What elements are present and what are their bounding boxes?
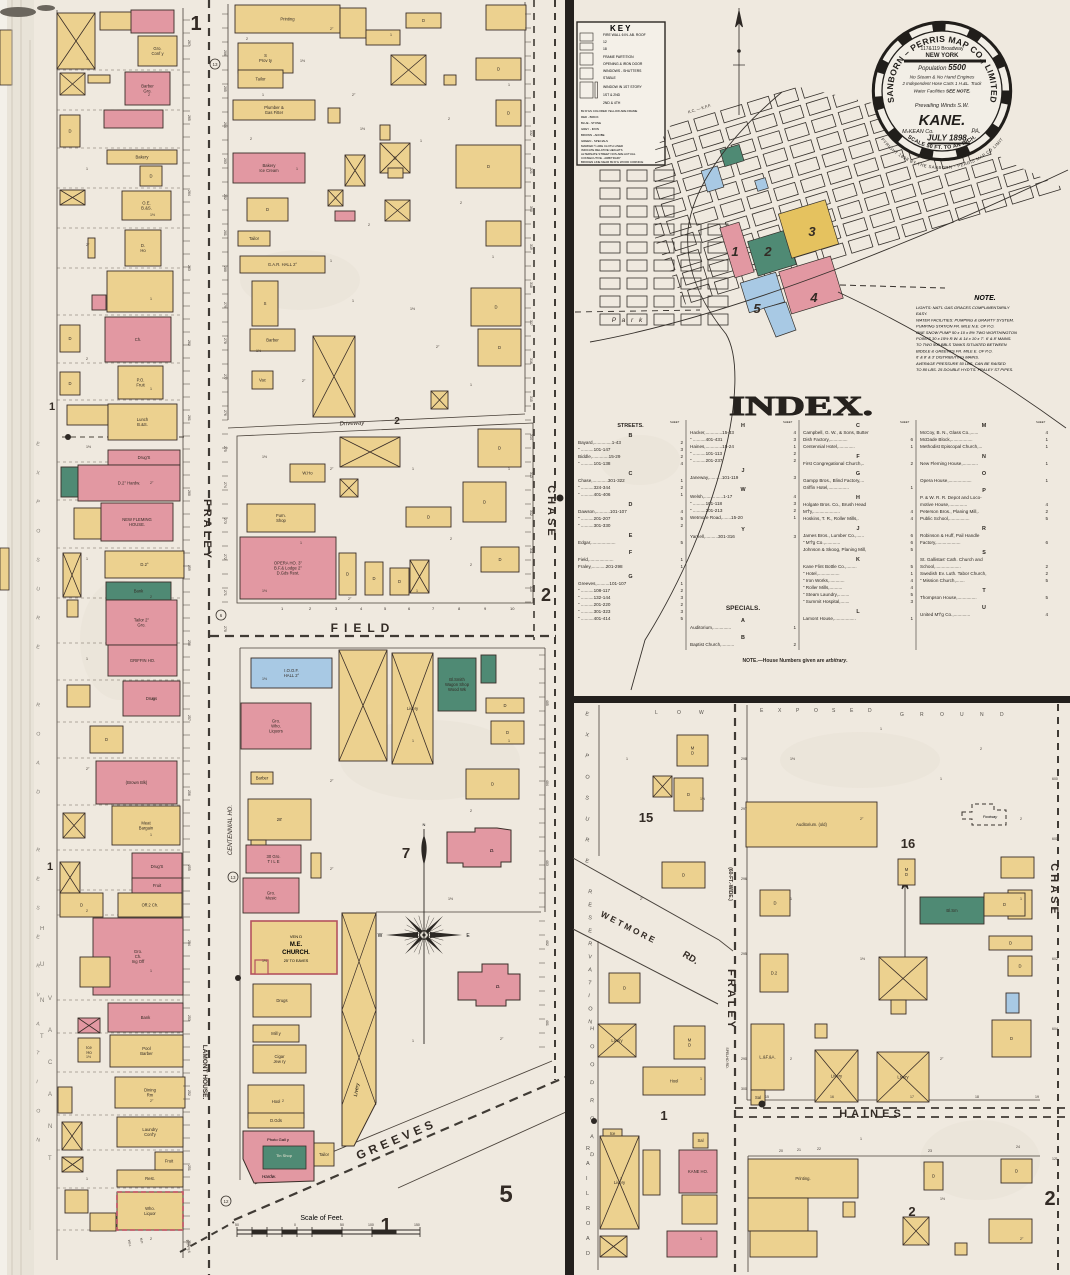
svg-text:401: 401 — [545, 1020, 549, 1026]
svg-text:1½: 1½ — [700, 797, 705, 801]
svg-text:202: 202 — [223, 194, 227, 200]
svg-text:2: 2 — [450, 537, 452, 541]
svg-text:270: 270 — [223, 626, 227, 632]
svg-text:255: 255 — [187, 865, 191, 871]
svg-text:Robinson & Huff, Pail Handle: Robinson & Huff, Pail Handle — [920, 533, 980, 538]
svg-text:D: D — [105, 737, 108, 742]
svg-text:1: 1 — [790, 897, 792, 901]
svg-text:2: 2 — [148, 93, 150, 97]
svg-text:257: 257 — [187, 715, 191, 721]
svg-text:1: 1 — [296, 167, 298, 171]
svg-text:300: 300 — [741, 1087, 747, 1091]
svg-text:1: 1 — [86, 167, 88, 171]
svg-text:17: 17 — [910, 1095, 914, 1099]
svg-text:1: 1 — [940, 777, 942, 781]
svg-text:22: 22 — [817, 1147, 821, 1151]
svg-text:5: 5 — [753, 301, 761, 316]
svg-text:23: 23 — [928, 1149, 932, 1153]
svg-text:BLUE - STONE: BLUE - STONE — [581, 121, 601, 125]
svg-text:2°: 2° — [940, 1057, 944, 1061]
svg-text:Fruit: Fruit — [136, 383, 145, 388]
svg-text:Wetmore Road,.......15-20: Wetmore Road,.......15-20 — [690, 515, 743, 520]
svg-text:WINDOW IN 1ST STORY: WINDOW IN 1ST STORY — [603, 85, 643, 89]
svg-text:1: 1 — [1045, 461, 1048, 466]
svg-text:206: 206 — [223, 50, 227, 56]
svg-text:RED - BRICK: RED - BRICK — [581, 115, 599, 119]
svg-text:Hacker,.............15-33: Hacker,.............15-33 — [690, 430, 734, 435]
svg-text:WINDOWS - SHUTTERS: WINDOWS - SHUTTERS — [603, 69, 642, 73]
svg-text:2: 2 — [246, 37, 248, 41]
svg-text:3: 3 — [793, 437, 796, 442]
svg-text:B.&S.: B.&S. — [137, 422, 148, 427]
svg-text:motive House,..............: motive House,.............. — [920, 502, 967, 507]
svg-text:403: 403 — [545, 860, 549, 866]
svg-text:D.: D. — [490, 848, 495, 853]
svg-text:6' & 8' & 3' DISTRIBUTING MA: 6' & 8' & 3' DISTRIBUTING MAINS. — [916, 355, 979, 360]
svg-text:1: 1 — [300, 541, 302, 545]
svg-text:3: 3 — [910, 599, 913, 604]
svg-text:1: 1 — [150, 833, 152, 837]
svg-text:D: D — [372, 576, 375, 581]
svg-text:U: U — [982, 605, 986, 611]
svg-text:28': 28' — [277, 817, 283, 822]
svg-text:1: 1 — [412, 467, 414, 471]
svg-text:Livery: Livery — [407, 706, 419, 711]
svg-text:C: C — [48, 1060, 53, 1066]
svg-text:D: D — [422, 18, 425, 23]
svg-text:604: 604 — [1052, 1027, 1058, 1031]
svg-text:2: 2 — [460, 201, 462, 205]
svg-text:280: 280 — [223, 266, 227, 272]
svg-text:5: 5 — [680, 616, 683, 621]
svg-text:2°: 2° — [302, 379, 306, 383]
svg-text:2: 2 — [1045, 509, 1048, 514]
svg-text:2: 2 — [86, 909, 88, 913]
svg-text:N: N — [423, 822, 426, 827]
svg-text:C: C — [856, 423, 860, 429]
svg-text:4: 4 — [910, 585, 913, 590]
svg-text:N: N — [982, 454, 986, 460]
svg-text:D: D — [1000, 712, 1004, 718]
svg-text:4: 4 — [793, 494, 796, 499]
svg-text:Livery: Livery — [831, 1073, 843, 1078]
svg-text:Sal: Sal — [755, 1095, 761, 1100]
svg-text:2°: 2° — [330, 779, 334, 783]
svg-text:271: 271 — [223, 590, 227, 596]
svg-text:G: G — [900, 712, 904, 718]
svg-text:2: 2 — [86, 357, 88, 361]
svg-text:1: 1 — [910, 616, 913, 621]
svg-text:Lamont House,.................: Lamont House,................. — [803, 616, 856, 621]
svg-text:4: 4 — [1045, 430, 1048, 435]
svg-text:278: 278 — [223, 338, 227, 344]
svg-text:1: 1 — [680, 557, 683, 562]
svg-text:19: 19 — [1035, 1095, 1039, 1099]
svg-text:P: P — [982, 488, 986, 494]
svg-text:50: 50 — [340, 1223, 344, 1227]
svg-text:Photo Gall y: Photo Gall y — [267, 1137, 289, 1142]
svg-text:Livery: Livery — [897, 1074, 909, 1079]
svg-text:3: 3 — [680, 447, 683, 452]
svg-text:4: 4 — [910, 578, 913, 583]
svg-text:D: D — [491, 781, 494, 786]
svg-text:Rest.: Rest. — [145, 1176, 155, 1181]
svg-text:Off.2 Ch.: Off.2 Ch. — [142, 902, 159, 907]
svg-text:D: D — [773, 900, 776, 905]
svg-text:2: 2 — [150, 1237, 152, 1241]
svg-text:D: D — [498, 345, 501, 350]
svg-text:D: D — [346, 571, 349, 576]
svg-text:6: 6 — [1045, 540, 1048, 545]
svg-text:1½: 1½ — [360, 127, 365, 131]
svg-text:H: H — [856, 495, 860, 501]
svg-text:Tin Shop: Tin Shop — [276, 1153, 293, 1158]
svg-text:“ ..........301-323: “ ..........301-323 — [578, 609, 611, 614]
svg-text:“ Summit Hospital,.......: “ Summit Hospital,....... — [803, 599, 849, 604]
svg-text:2: 2 — [368, 223, 370, 227]
svg-text:A: A — [48, 1092, 52, 1098]
svg-text:297: 297 — [741, 807, 747, 811]
svg-text:PUMPING STATION FR. MILE N.E: PUMPING STATION FR. MILE N.E. OF P.O. — [916, 324, 995, 329]
svg-text:405: 405 — [545, 700, 549, 706]
svg-text:FIRE WALL 6 IN. AB. ROOF: FIRE WALL 6 IN. AB. ROOF — [603, 33, 646, 37]
svg-text:265: 265 — [187, 115, 191, 121]
svg-text:“ ..........101-118: “ ..........101-118 — [690, 501, 723, 506]
svg-text:Dawson,...........101-107: Dawson,...........101-107 — [578, 509, 627, 514]
svg-text:3: 3 — [808, 224, 816, 239]
svg-text:GREY - IRON: GREY - IRON — [581, 127, 599, 131]
svg-text:D: D — [1018, 963, 1021, 968]
svg-text:O: O — [982, 471, 986, 477]
svg-text:13: 13 — [212, 62, 218, 67]
svg-text:Opera House,..................: Opera House,.................. — [920, 478, 972, 483]
svg-text:“ Steam Laundry,.........: “ Steam Laundry,......... — [803, 592, 849, 597]
svg-text:No Steam & No Hand Engines: No Steam & No Hand Engines — [910, 75, 975, 81]
svg-text:TO 80 LBS. 25 DOUBLE HYD'TS.: TO 80 LBS. 25 DOUBLE HYD'TS. FRALEY ST P… — [916, 367, 1013, 372]
svg-text:2: 2 — [680, 602, 683, 607]
svg-text:Welsh,...............1-17: Welsh,...............1-17 — [690, 494, 733, 499]
svg-text:1: 1 — [416, 589, 418, 593]
svg-text:5: 5 — [680, 516, 683, 521]
svg-text:18: 18 — [975, 1095, 979, 1099]
svg-text:5: 5 — [1045, 516, 1048, 521]
svg-text:2°: 2° — [150, 481, 154, 485]
svg-text:1½: 1½ — [410, 307, 415, 311]
svg-text:“ Hotel,.................: “ Hotel,................. — [803, 571, 840, 576]
svg-text:Conf y: Conf y — [151, 51, 164, 56]
svg-text:Haines,.............15-24: Haines,.............15-24 — [690, 444, 734, 449]
svg-text:A: A — [48, 1028, 52, 1034]
svg-text:School,....................: School,.................... — [920, 564, 961, 569]
svg-text:GREEN - SPECIALS: GREEN - SPECIALS — [581, 139, 608, 143]
svg-text:15: 15 — [639, 810, 653, 825]
svg-text:1: 1 — [1045, 444, 1048, 449]
svg-text:4: 4 — [809, 290, 818, 305]
svg-text:1: 1 — [700, 1077, 702, 1081]
svg-text:290: 290 — [741, 1057, 747, 1061]
svg-text:“ ..........101-147: “ ..........101-147 — [578, 447, 611, 452]
svg-text:50: 50 — [235, 1223, 239, 1227]
svg-text:Factory,...................: Factory,................... — [920, 540, 961, 545]
svg-text:253: 253 — [187, 1015, 191, 1021]
svg-text:1: 1 — [49, 401, 55, 413]
svg-text:Bakery: Bakery — [135, 154, 149, 159]
svg-text:S: S — [982, 550, 986, 556]
svg-text:1½: 1½ — [262, 589, 267, 593]
svg-text:2: 2 — [680, 523, 683, 528]
svg-text:D: D — [682, 872, 685, 877]
svg-text:D: D — [586, 1251, 590, 1257]
svg-text:N: N — [40, 998, 44, 1004]
svg-text:1: 1 — [352, 299, 354, 303]
svg-text:310: 310 — [529, 586, 533, 592]
svg-text:HAINES: HAINES — [839, 1108, 905, 1120]
svg-text:SPELHO RD.: SPELHO RD. — [725, 1047, 729, 1068]
svg-text:KEY: KEY — [610, 24, 632, 33]
svg-text:D.2: D.2 — [771, 970, 778, 975]
svg-text:1: 1 — [508, 83, 510, 87]
svg-text:Field,...................: Field,................... — [578, 557, 613, 562]
svg-text:D: D — [687, 792, 690, 797]
svg-text:1: 1 — [793, 515, 796, 520]
svg-text:390: 390 — [529, 206, 533, 212]
svg-text:Bayard,..............1-43: Bayard,..............1-43 — [578, 440, 621, 445]
svg-text:1: 1 — [1020, 897, 1022, 901]
svg-text:D.2° Hardw.: D.2° Hardw. — [118, 480, 140, 485]
svg-text:1½: 1½ — [262, 455, 267, 459]
svg-text:296: 296 — [741, 877, 747, 881]
svg-text:ONE SNOW PUMP 50 x 10 x 8½: ONE SNOW PUMP 50 x 10 x 8½ TWO WORTHINGT… — [916, 330, 1017, 335]
svg-text:SHEET: SHEET — [783, 420, 793, 424]
svg-text:Sal: Sal — [697, 1138, 703, 1143]
svg-text:1: 1 — [420, 139, 422, 143]
svg-text:Tailor: Tailor — [255, 76, 266, 81]
svg-text:6: 6 — [910, 533, 913, 538]
svg-text:H: H — [741, 423, 745, 429]
svg-text:2 Independent Hose Carts 1 H.: 2 Independent Hose Carts 1 H.&L. Truck — [902, 81, 983, 86]
svg-text:Gas Fitter: Gas Fitter — [265, 110, 284, 115]
svg-text:R: R — [982, 526, 986, 532]
svg-text:“ ..........401-431: “ ..........401-431 — [690, 437, 723, 442]
svg-text:Liquors: Liquors — [269, 729, 283, 734]
svg-text:Edgar,...................: Edgar,................... — [578, 540, 616, 545]
svg-text:25' TO EAVES: 25' TO EAVES — [284, 959, 309, 963]
svg-text:2: 2 — [680, 454, 683, 459]
svg-text:WATER FACILITIES: PUMPING & G: WATER FACILITIES: PUMPING & GRAVITY SYST… — [916, 317, 1014, 322]
svg-text:404: 404 — [545, 780, 549, 786]
svg-text:B.&S.: B.&S. — [141, 206, 152, 211]
svg-text:Gampp Bros., Blind Factory,...: Gampp Bros., Blind Factory,... — [803, 478, 864, 483]
svg-text:N: N — [48, 1124, 52, 1130]
svg-text:Music: Music — [266, 896, 277, 901]
svg-text:2: 2 — [394, 416, 400, 427]
svg-text:2: 2 — [910, 461, 913, 466]
svg-text:263: 263 — [187, 265, 191, 271]
svg-text:Fruit: Fruit — [165, 1158, 174, 1163]
svg-text:Printing: Printing — [280, 16, 295, 21]
svg-text:203: 203 — [223, 158, 227, 164]
svg-text:D.2°: D.2° — [140, 562, 149, 567]
svg-text:298: 298 — [741, 757, 747, 761]
svg-text:Hool: Hool — [670, 1078, 679, 1083]
svg-text:1½: 1½ — [860, 957, 865, 961]
svg-text:252: 252 — [187, 1090, 191, 1096]
svg-text:10: 10 — [510, 606, 515, 611]
svg-text:St. Gallistas' Cath. Church an: St. Gallistas' Cath. Church and — [920, 557, 983, 562]
svg-text:332: 332 — [529, 130, 533, 136]
svg-text:16: 16 — [901, 836, 915, 851]
svg-text:316: 316 — [529, 358, 533, 364]
svg-text:1: 1 — [793, 625, 796, 630]
svg-text:“ ..........201-237: “ ..........201-237 — [690, 458, 723, 463]
svg-text:Dish Factory,..............: Dish Factory,.............. — [803, 437, 848, 442]
svg-text:U: U — [40, 962, 44, 968]
svg-text:R: R — [920, 712, 924, 718]
svg-text:(Brown Blk): (Brown Blk) — [126, 780, 148, 785]
svg-text:D: D — [691, 751, 694, 756]
svg-text:Chase,............301-322: Chase,............301-322 — [578, 478, 625, 483]
svg-text:“ ..........201-220: “ ..........201-220 — [578, 602, 611, 607]
svg-text:295: 295 — [741, 952, 747, 956]
svg-text:D: D — [80, 902, 83, 907]
svg-text:2: 2 — [541, 585, 551, 605]
svg-text:314: 314 — [529, 434, 533, 440]
svg-text:2: 2 — [1044, 1188, 1055, 1210]
svg-text:D: D — [494, 304, 497, 309]
svg-text:Auditorium. (old): Auditorium. (old) — [796, 822, 827, 827]
svg-text:2°: 2° — [86, 767, 90, 771]
svg-text:2°: 2° — [150, 1099, 154, 1103]
svg-text:272: 272 — [223, 554, 227, 560]
svg-text:D: D — [498, 445, 501, 450]
svg-text:Ch.: Ch. — [135, 337, 142, 342]
svg-text:259: 259 — [187, 565, 191, 571]
svg-text:Fraley,...........201-298: Fraley,...........201-298 — [578, 564, 623, 569]
svg-text:1: 1 — [508, 739, 510, 743]
svg-text:James Bros., Lumber Co.,......: James Bros., Lumber Co.,...... — [803, 533, 864, 538]
svg-text:D: D — [483, 499, 486, 504]
svg-text:VEN D: VEN D — [290, 934, 302, 939]
svg-text:1: 1 — [150, 969, 152, 973]
svg-text:Hoskins, T. R., Roller Mills,.: Hoskins, T. R., Roller Mills,. — [803, 516, 859, 521]
svg-text:POINTS 30 x 15½ R.W. & 14 x 1: POINTS 30 x 15½ R.W. & 14 x 10 x 7'. 6' … — [916, 336, 1012, 341]
svg-text:258: 258 — [187, 640, 191, 646]
svg-text:SPECIALS.: SPECIALS. — [726, 605, 761, 612]
svg-text:“ ..........108-117: “ ..........108-117 — [578, 588, 611, 593]
svg-text:1½: 1½ — [790, 757, 795, 761]
svg-text:2: 2 — [620, 1177, 622, 1181]
svg-text:United M'f'g Co.,.............: United M'f'g Co.,............. — [920, 612, 970, 617]
svg-text:BROKEN LINE NEAR BL'D'G WOOD C: BROKEN LINE NEAR BL'D'G WOOD CORNICE — [581, 160, 643, 164]
svg-text:Liquor: Liquor — [144, 1211, 156, 1216]
svg-text:1: 1 — [150, 297, 152, 301]
svg-text:5: 5 — [910, 564, 913, 569]
svg-text:Drug'S: Drug'S — [138, 455, 151, 460]
svg-text:1: 1 — [793, 444, 796, 449]
svg-text:121: 121 — [1052, 1157, 1058, 1161]
svg-text:Greeves,..........101-107: Greeves,..........101-107 — [578, 581, 627, 586]
svg-text:1: 1 — [731, 244, 738, 259]
svg-text:275: 275 — [223, 446, 227, 452]
svg-text:D: D — [1015, 1168, 1018, 1173]
svg-text:267: 267 — [187, 40, 191, 46]
svg-text:Janeway,..........101-119: Janeway,..........101-119 — [690, 475, 739, 480]
svg-text:2ND & 4TH: 2ND & 4TH — [603, 101, 621, 105]
svg-text:4: 4 — [680, 461, 683, 466]
svg-text:1½: 1½ — [256, 349, 261, 353]
svg-text:1½: 1½ — [150, 697, 155, 701]
svg-text:D: D — [932, 1173, 935, 1178]
svg-text:3: 3 — [793, 475, 796, 480]
svg-text:O: O — [586, 1221, 591, 1227]
svg-text:M'f'y,.....................: M'f'y,..................... — [803, 509, 840, 514]
svg-text:402: 402 — [545, 940, 549, 946]
svg-text:16: 16 — [830, 1095, 834, 1099]
svg-text:Bargain: Bargain — [139, 826, 154, 831]
svg-text:1: 1 — [860, 1137, 862, 1141]
svg-text:274: 274 — [223, 482, 227, 488]
svg-text:P a r k: P a r k — [612, 317, 645, 324]
svg-text:D: D — [266, 207, 269, 212]
svg-text:“ ..........101-113: “ ..........101-113 — [690, 451, 723, 456]
svg-text:1½: 1½ — [262, 959, 267, 963]
svg-text:R: R — [586, 1206, 590, 1212]
svg-text:273: 273 — [223, 518, 227, 524]
svg-text:D: D — [629, 502, 633, 508]
svg-text:Swedish Ev. Luth. Tabor Church: Swedish Ev. Luth. Tabor Church, — [920, 571, 986, 576]
svg-text:Johnson & Skoog, Planing Mill,: Johnson & Skoog, Planing Mill, — [803, 547, 866, 552]
svg-text:201: 201 — [223, 230, 227, 236]
svg-text:1: 1 — [910, 444, 913, 449]
svg-text:H: H — [590, 1026, 595, 1032]
svg-text:2: 2 — [793, 642, 796, 647]
svg-text:(60-FT.-WIDE.): (60-FT.-WIDE.) — [727, 867, 733, 901]
svg-text:2: 2 — [980, 747, 982, 751]
svg-text:Conf'y: Conf'y — [144, 1132, 157, 1137]
svg-text:LAMONT HOUSE.: LAMONT HOUSE. — [201, 1045, 208, 1100]
svg-text:STABLE: STABLE — [603, 76, 616, 80]
svg-text:1½: 1½ — [86, 1055, 91, 1059]
svg-text:Ing Off: Ing Off — [132, 959, 145, 964]
svg-text:C: C — [629, 471, 633, 477]
svg-text:Prov ty: Prov ty — [259, 58, 273, 63]
svg-text:T: T — [48, 1156, 52, 1162]
svg-text:1: 1 — [1045, 478, 1048, 483]
svg-text:OPENING & IRON DOOR: OPENING & IRON DOOR — [603, 62, 643, 66]
svg-text:1: 1 — [626, 757, 628, 761]
svg-text:5: 5 — [910, 592, 913, 597]
svg-text:D: D — [398, 579, 401, 584]
svg-text:260: 260 — [187, 490, 191, 496]
svg-text:Thompson House,...............: Thompson House,............... — [920, 595, 977, 600]
svg-text:254: 254 — [187, 940, 191, 946]
svg-text:2°: 2° — [330, 27, 334, 31]
svg-text:312: 312 — [529, 510, 533, 516]
svg-text:W: W — [378, 933, 383, 939]
svg-text:D: D — [1003, 902, 1006, 907]
svg-text:O: O — [814, 708, 818, 714]
svg-text:L: L — [586, 1191, 589, 1197]
svg-text:E: E — [629, 533, 633, 539]
svg-text:Gro.: Gro. — [137, 623, 145, 628]
svg-text:Centennial Hotel,.............: Centennial Hotel,............. — [803, 444, 855, 449]
svg-text:1: 1 — [880, 727, 882, 731]
svg-text:First Congregational Church,..: First Congregational Church,.. — [803, 461, 864, 466]
svg-text:CENTENNIAL HO.: CENTENNIAL HO. — [228, 805, 234, 855]
svg-text:“ M'f'g Co.,............: “ M'f'g Co.,............ — [803, 540, 840, 545]
svg-text:Printing.: Printing. — [795, 1176, 810, 1181]
svg-text:3: 3 — [793, 501, 796, 506]
